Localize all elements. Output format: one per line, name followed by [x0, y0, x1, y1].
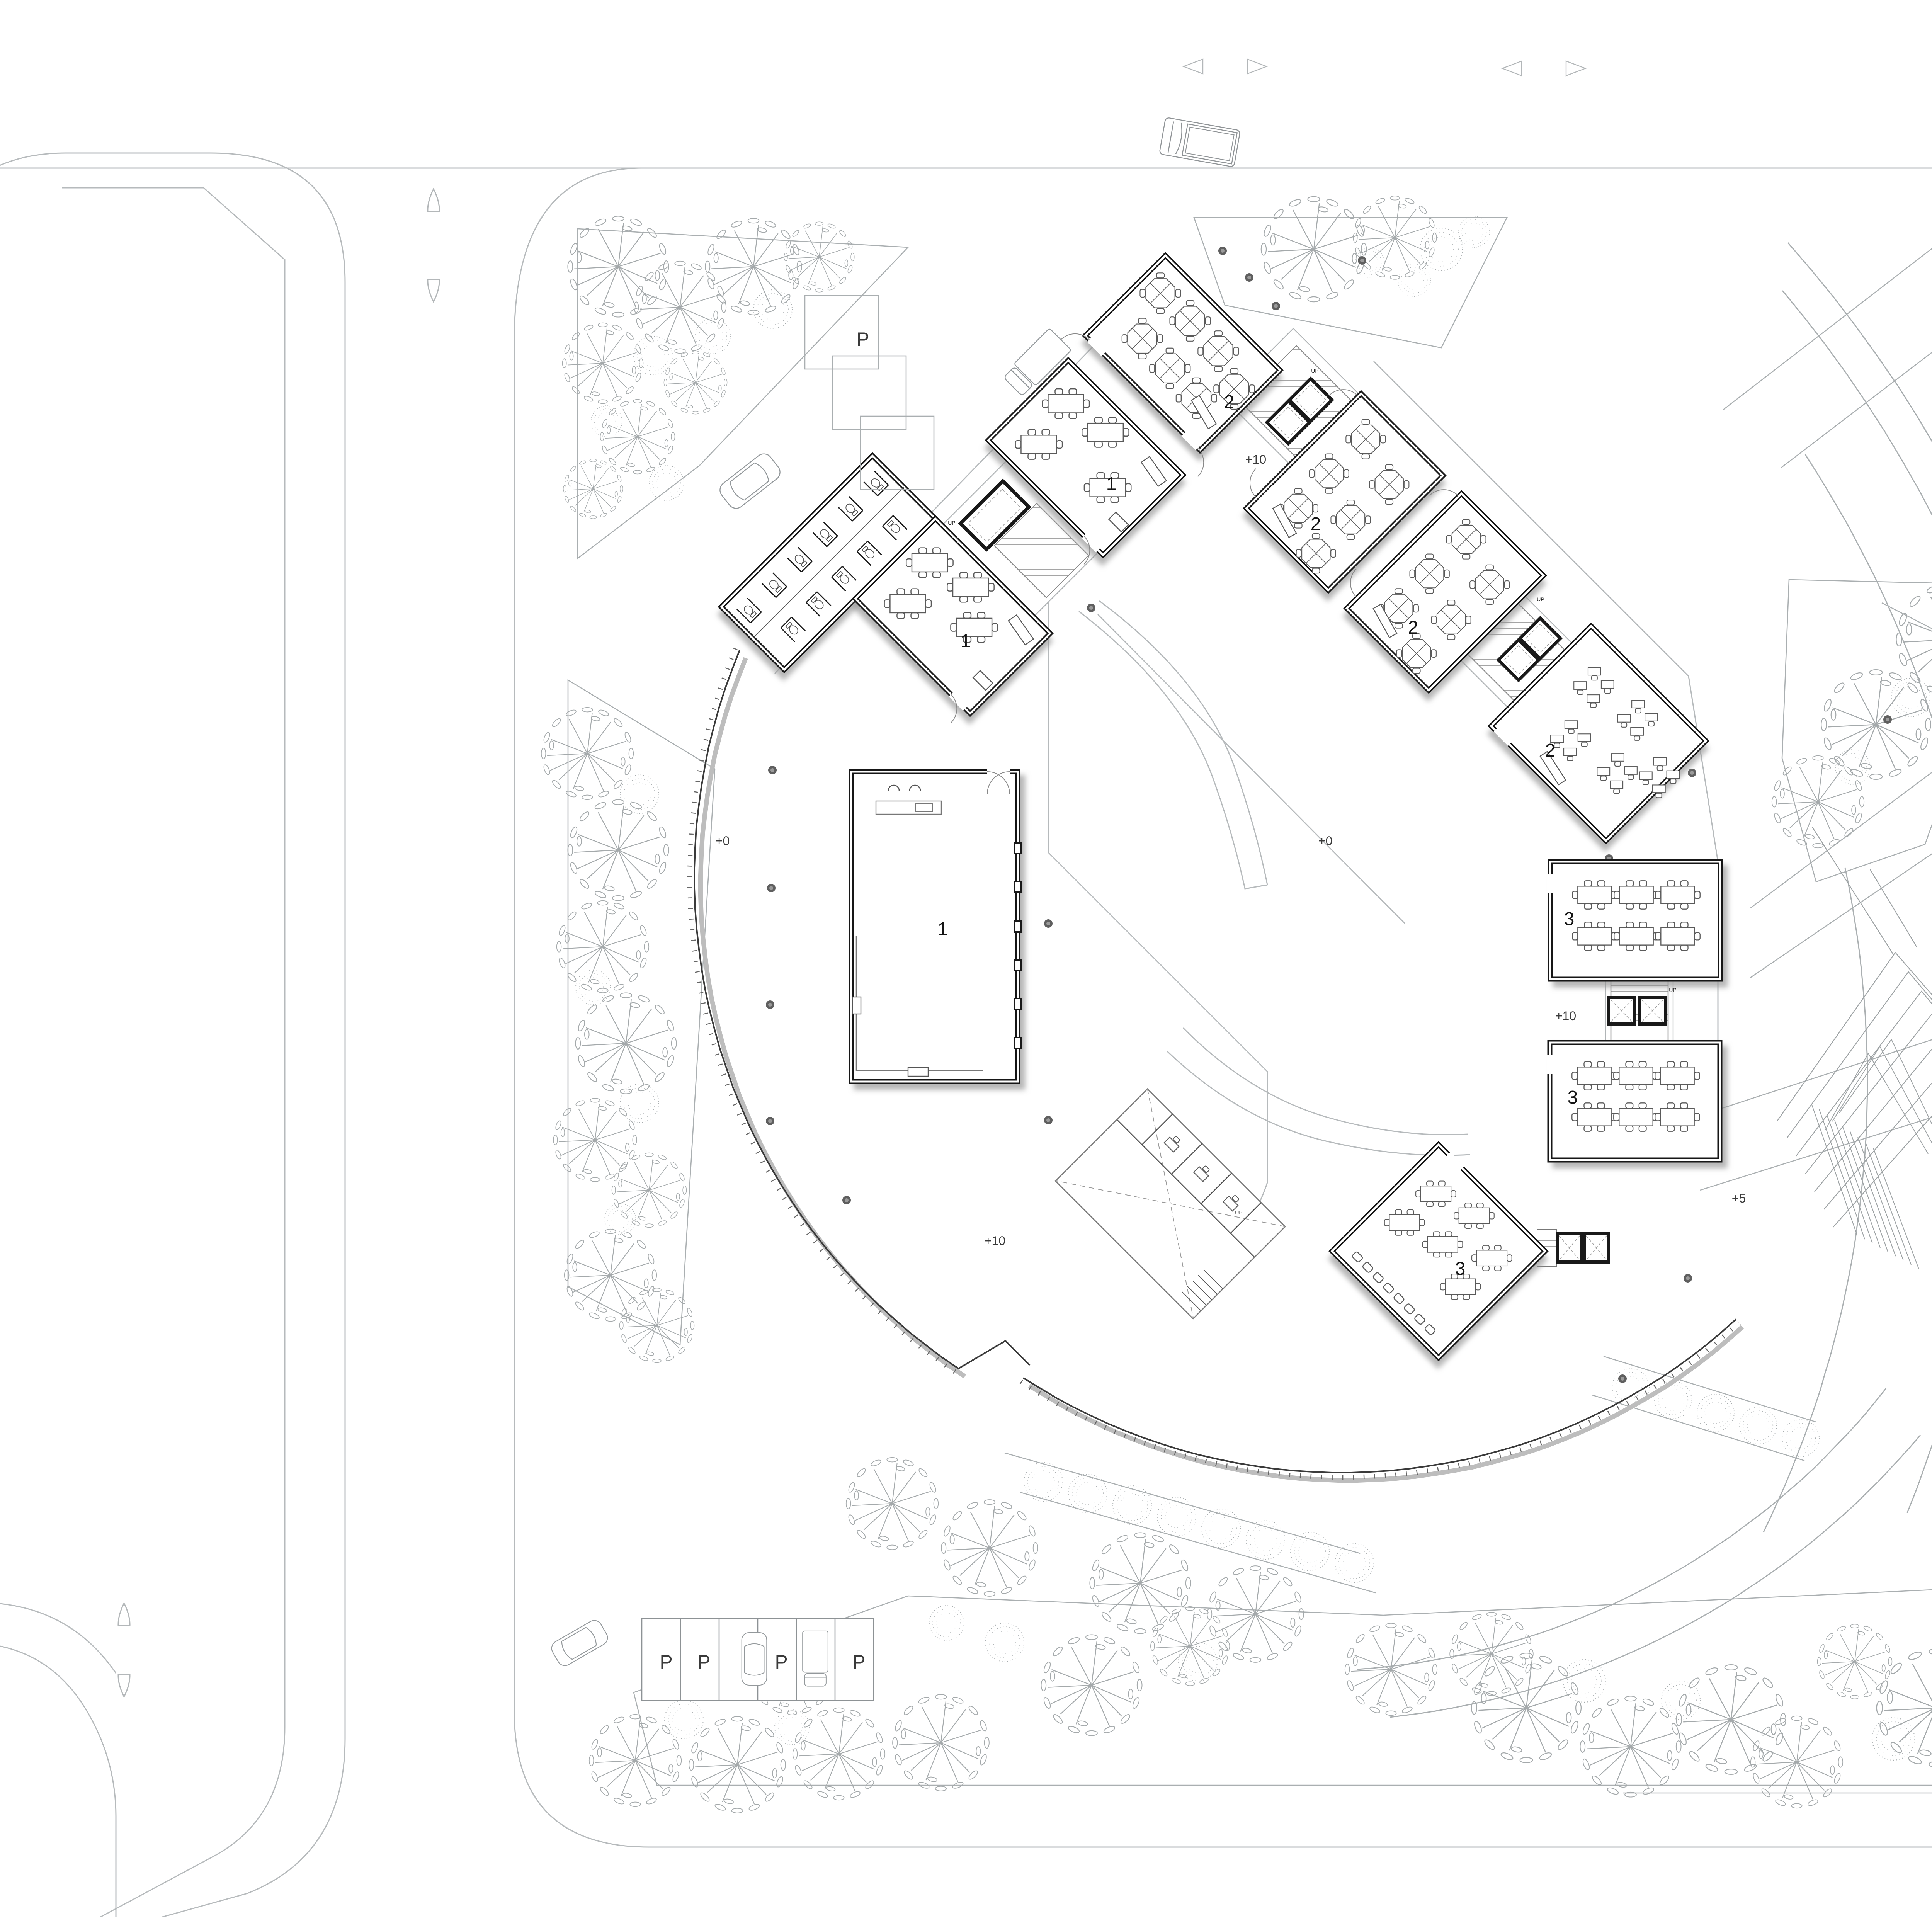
svg-text:UP: UP	[1669, 987, 1676, 993]
svg-text:2: 2	[1545, 740, 1556, 761]
svg-text:P: P	[660, 1651, 672, 1673]
svg-text:UP: UP	[1235, 1209, 1242, 1216]
svg-text:P: P	[697, 1651, 710, 1673]
svg-text:2: 2	[1408, 617, 1418, 638]
svg-text:3: 3	[1568, 1087, 1578, 1108]
svg-text:UP: UP	[948, 520, 955, 526]
svg-text:+10: +10	[1245, 452, 1266, 466]
svg-text:UP: UP	[1537, 596, 1544, 602]
svg-text:3: 3	[1564, 909, 1575, 929]
svg-text:1: 1	[938, 919, 948, 939]
svg-text:P: P	[775, 1651, 787, 1673]
svg-text:1: 1	[961, 631, 971, 651]
svg-text:+0: +0	[716, 834, 730, 848]
svg-text:P: P	[856, 328, 869, 350]
svg-text:2: 2	[1224, 392, 1235, 412]
svg-text:P: P	[852, 1651, 865, 1673]
svg-text:UP: UP	[1311, 367, 1318, 374]
svg-text:+10: +10	[985, 1234, 1005, 1248]
svg-text:+0: +0	[1318, 834, 1332, 848]
svg-text:3: 3	[1455, 1259, 1466, 1279]
svg-text:+5: +5	[1732, 1191, 1746, 1205]
svg-text:+10: +10	[1555, 1009, 1576, 1023]
svg-text:2: 2	[1311, 514, 1321, 534]
svg-text:1: 1	[1106, 474, 1117, 494]
